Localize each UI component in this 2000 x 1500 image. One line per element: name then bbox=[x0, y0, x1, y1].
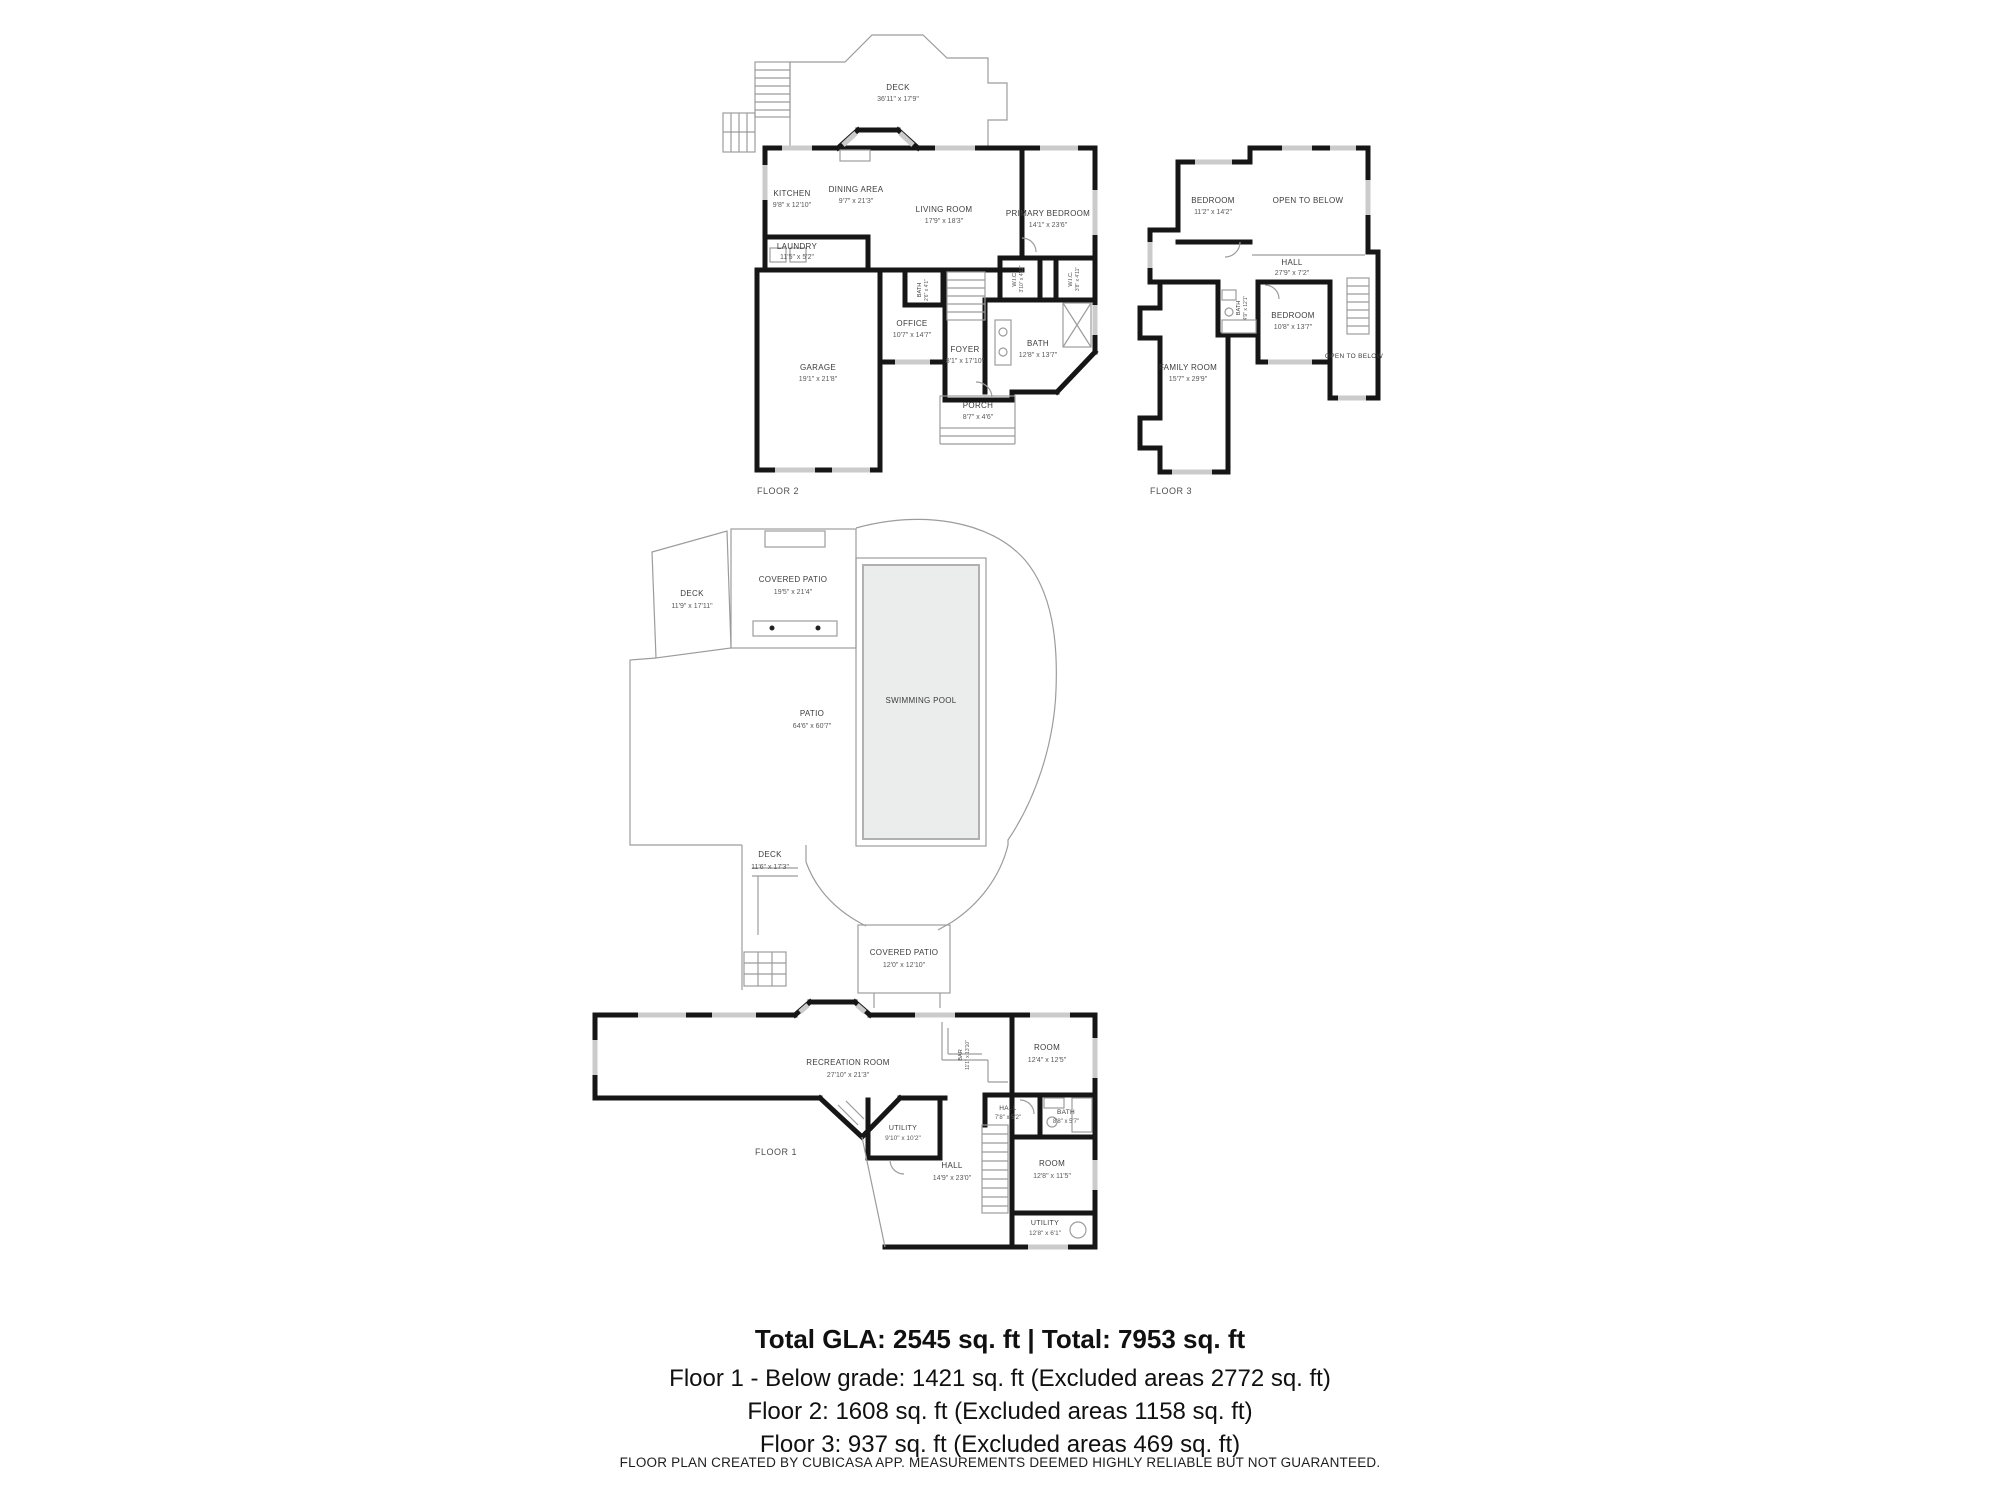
floor3-bedroom1-dims: 11'2" x 14'2" bbox=[1194, 209, 1232, 216]
floor1-hall2-dims: 14'9" x 23'0" bbox=[933, 1175, 972, 1182]
floor1-recreation-dims: 27'10" x 21'3" bbox=[827, 1072, 870, 1079]
floor3-tag: FLOOR 3 bbox=[1150, 486, 1192, 496]
floor2-primary-dims: 14'1" x 23'6" bbox=[1029, 222, 1068, 229]
patio-post-2 bbox=[816, 626, 821, 631]
floor3-bedroom2-dims: 10'8" x 13'7" bbox=[1274, 324, 1313, 331]
floor3-bedroom2-label: BEDROOM bbox=[1271, 311, 1314, 320]
floor1-walls bbox=[595, 1002, 1095, 1247]
floor3-open1-label: OPEN TO BELOW bbox=[1273, 196, 1344, 205]
floor2-deck-stairs bbox=[723, 62, 790, 152]
floor1-recreation-label: RECREATION ROOM bbox=[806, 1058, 890, 1067]
floor1-utility2-label: UTILITY bbox=[1031, 1220, 1059, 1227]
summary-block: Total GLA: 2545 sq. ft | Total: 7953 sq.… bbox=[0, 1324, 2000, 1461]
site-patio-label: PATIO bbox=[800, 709, 824, 718]
floor2-smallbath-dims: 2'6" x 4'1" bbox=[924, 279, 930, 301]
patio-post-1 bbox=[770, 626, 775, 631]
floor3-open2-label: OPEN TO BELOW bbox=[1325, 353, 1384, 360]
floor1-room1-label: ROOM bbox=[1034, 1043, 1060, 1052]
site-deck-upper-dims: 11'9" x 17'11" bbox=[671, 603, 713, 610]
floor3-hall-label: HALL bbox=[1281, 258, 1302, 267]
floor2-dining-dims: 9'7" x 21'3" bbox=[839, 198, 874, 205]
floor1-room1-dims: 12'4" x 12'5" bbox=[1028, 1057, 1067, 1064]
floor2-dining-label: DINING AREA bbox=[829, 185, 884, 194]
floor2-deck-dims: 36'11" x 17'9" bbox=[877, 96, 919, 103]
site-pool-label: SWIMMING POOL bbox=[885, 696, 956, 705]
floor1-hall1-label: HALL bbox=[999, 1105, 1017, 1112]
summary-floor1-line: Floor 1 - Below grade: 1421 sq. ft (Excl… bbox=[0, 1362, 2000, 1395]
summary-floor2-line: Floor 2: 1608 sq. ft (Excluded areas 115… bbox=[0, 1395, 2000, 1428]
floor1-room2-label: ROOM bbox=[1039, 1159, 1065, 1168]
floor3-bath-dims: 4'9" x 12'1" bbox=[1243, 295, 1249, 320]
floor3-hall-dims: 27'9" x 7'2" bbox=[1275, 270, 1310, 277]
floor1-hall1-dims: 7'8" x 5'2" bbox=[995, 1115, 1021, 1121]
floor2-wic2-label: W.I.C. bbox=[1068, 271, 1074, 287]
floor2-living-dims: 17'9" x 18'3" bbox=[925, 218, 964, 225]
floor1-utility1-dims: 9'10" x 10'2" bbox=[885, 1135, 921, 1142]
site-plan: DECK 11'9" x 17'11" COVERED PATIO 19'5" … bbox=[480, 505, 1070, 1010]
floor2-foyer-label: FOYER bbox=[950, 345, 979, 354]
floor2-garage-label: GARAGE bbox=[800, 363, 836, 372]
floor2-bath-dims: 12'8" x 13'7" bbox=[1019, 352, 1058, 359]
site-deck-lower-label: DECK bbox=[758, 850, 782, 859]
site-covered-patio-upper-dims: 19'5" x 21'4" bbox=[774, 589, 813, 596]
floor1-hall2-label: HALL bbox=[941, 1161, 962, 1170]
disclaimer-text: FLOOR PLAN CREATED BY CUBICASA APP. MEAS… bbox=[0, 1455, 2000, 1470]
floor1-bar-label: BAR bbox=[958, 1049, 964, 1061]
floor2-office-dims: 10'7" x 14'7" bbox=[893, 332, 932, 339]
floor2-tag: FLOOR 2 bbox=[757, 486, 799, 496]
floor2-wic1-dims: 3'10" x 4'11" bbox=[1019, 265, 1025, 292]
floor2-bath-label: BATH bbox=[1027, 339, 1049, 348]
floor2-office-label: OFFICE bbox=[896, 319, 927, 328]
floor2-deck-label: DECK bbox=[886, 83, 910, 92]
floor2-primary-label: PRIMARY BEDROOM bbox=[1006, 209, 1090, 218]
floor2-wic1-label: W.I.C. bbox=[1012, 271, 1018, 287]
floor2-garage-dims: 19'1" x 21'8" bbox=[799, 376, 838, 383]
site-deck-lower-dims: 11'6" x 17'3" bbox=[751, 864, 789, 871]
floor2-wic2-dims: 3'8" x 4'11" bbox=[1075, 267, 1081, 291]
floor1-utility1-label: UTILITY bbox=[889, 1125, 917, 1132]
floor2-kitchen-label: KITCHEN bbox=[773, 189, 810, 198]
site-covered-patio-lower-dims: 12'0" x 12'10" bbox=[883, 962, 926, 969]
floor1-room2-dims: 12'8" x 11'5" bbox=[1033, 1173, 1071, 1180]
floor3-family-label: FAMILY ROOM bbox=[1159, 363, 1217, 372]
floor1-bath-label: BATH bbox=[1057, 1109, 1075, 1116]
floor3-family-dims: 15'7" x 29'9" bbox=[1169, 376, 1208, 383]
floor2-laundry-dims: 11'5" x 5'2" bbox=[780, 254, 814, 261]
floor2-kitchen-dims: 9'8" x 12'10" bbox=[773, 202, 812, 209]
floor2-laundry-label: LAUNDRY bbox=[777, 242, 818, 251]
floor3-plan: BEDROOM 11'2" x 14'2" OPEN TO BELOW HALL… bbox=[1125, 120, 1405, 510]
floor1-bath-dims: 8'8" x 5'7" bbox=[1053, 1119, 1079, 1125]
summary-total-line: Total GLA: 2545 sq. ft | Total: 7953 sq.… bbox=[0, 1324, 2000, 1355]
floor1-plan: RECREATION ROOM 27'10" x 21'3" BAR 11'1"… bbox=[575, 995, 1110, 1315]
floor2-foyer-dims: 8'1" x 17'10" bbox=[946, 358, 985, 365]
floor1-tag: FLOOR 1 bbox=[755, 1147, 797, 1157]
floor2-living-label: LIVING ROOM bbox=[916, 205, 973, 214]
floor2-porch-dims: 8'7" x 4'6" bbox=[963, 414, 994, 421]
site-deck-upper-label: DECK bbox=[680, 589, 704, 598]
floor3-bath-label: BATH bbox=[1236, 301, 1242, 316]
floor1-bar-dims: 11'1" x 13'10" bbox=[965, 1040, 971, 1070]
floor3-bedroom1-label: BEDROOM bbox=[1191, 196, 1234, 205]
site-patio-dims: 64'6" x 60'7" bbox=[793, 723, 832, 730]
site-covered-patio-lower-label: COVERED PATIO bbox=[870, 948, 939, 957]
floor-plan-page: DECK 36'11" x 17'9" KITCHEN 9'8" x 12'10… bbox=[0, 0, 2000, 1500]
floor2-plan: DECK 36'11" x 17'9" KITCHEN 9'8" x 12'10… bbox=[565, 10, 1110, 500]
site-covered-patio-upper-label: COVERED PATIO bbox=[759, 575, 828, 584]
floor2-porch-label: PORCH bbox=[963, 401, 993, 410]
floor2-smallbath-label: BATH bbox=[917, 283, 923, 298]
floor1-utility2-dims: 12'8" x 6'1" bbox=[1029, 1230, 1062, 1237]
